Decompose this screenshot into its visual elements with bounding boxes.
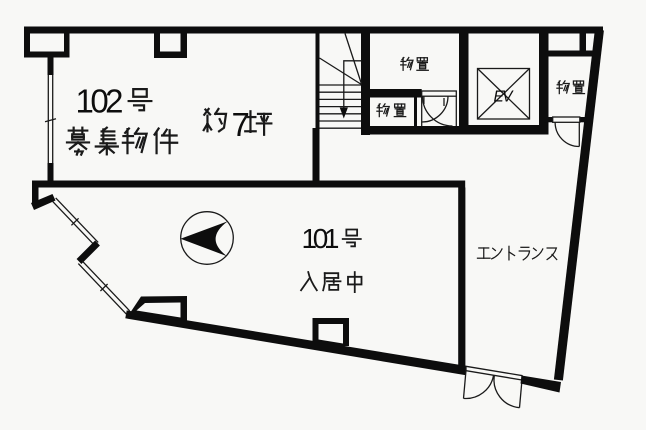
svg-text:7: 7 (232, 106, 250, 143)
svg-text:102: 102 (76, 83, 124, 120)
svg-text:101: 101 (302, 223, 340, 254)
svg-text:EV: EV (494, 89, 515, 106)
